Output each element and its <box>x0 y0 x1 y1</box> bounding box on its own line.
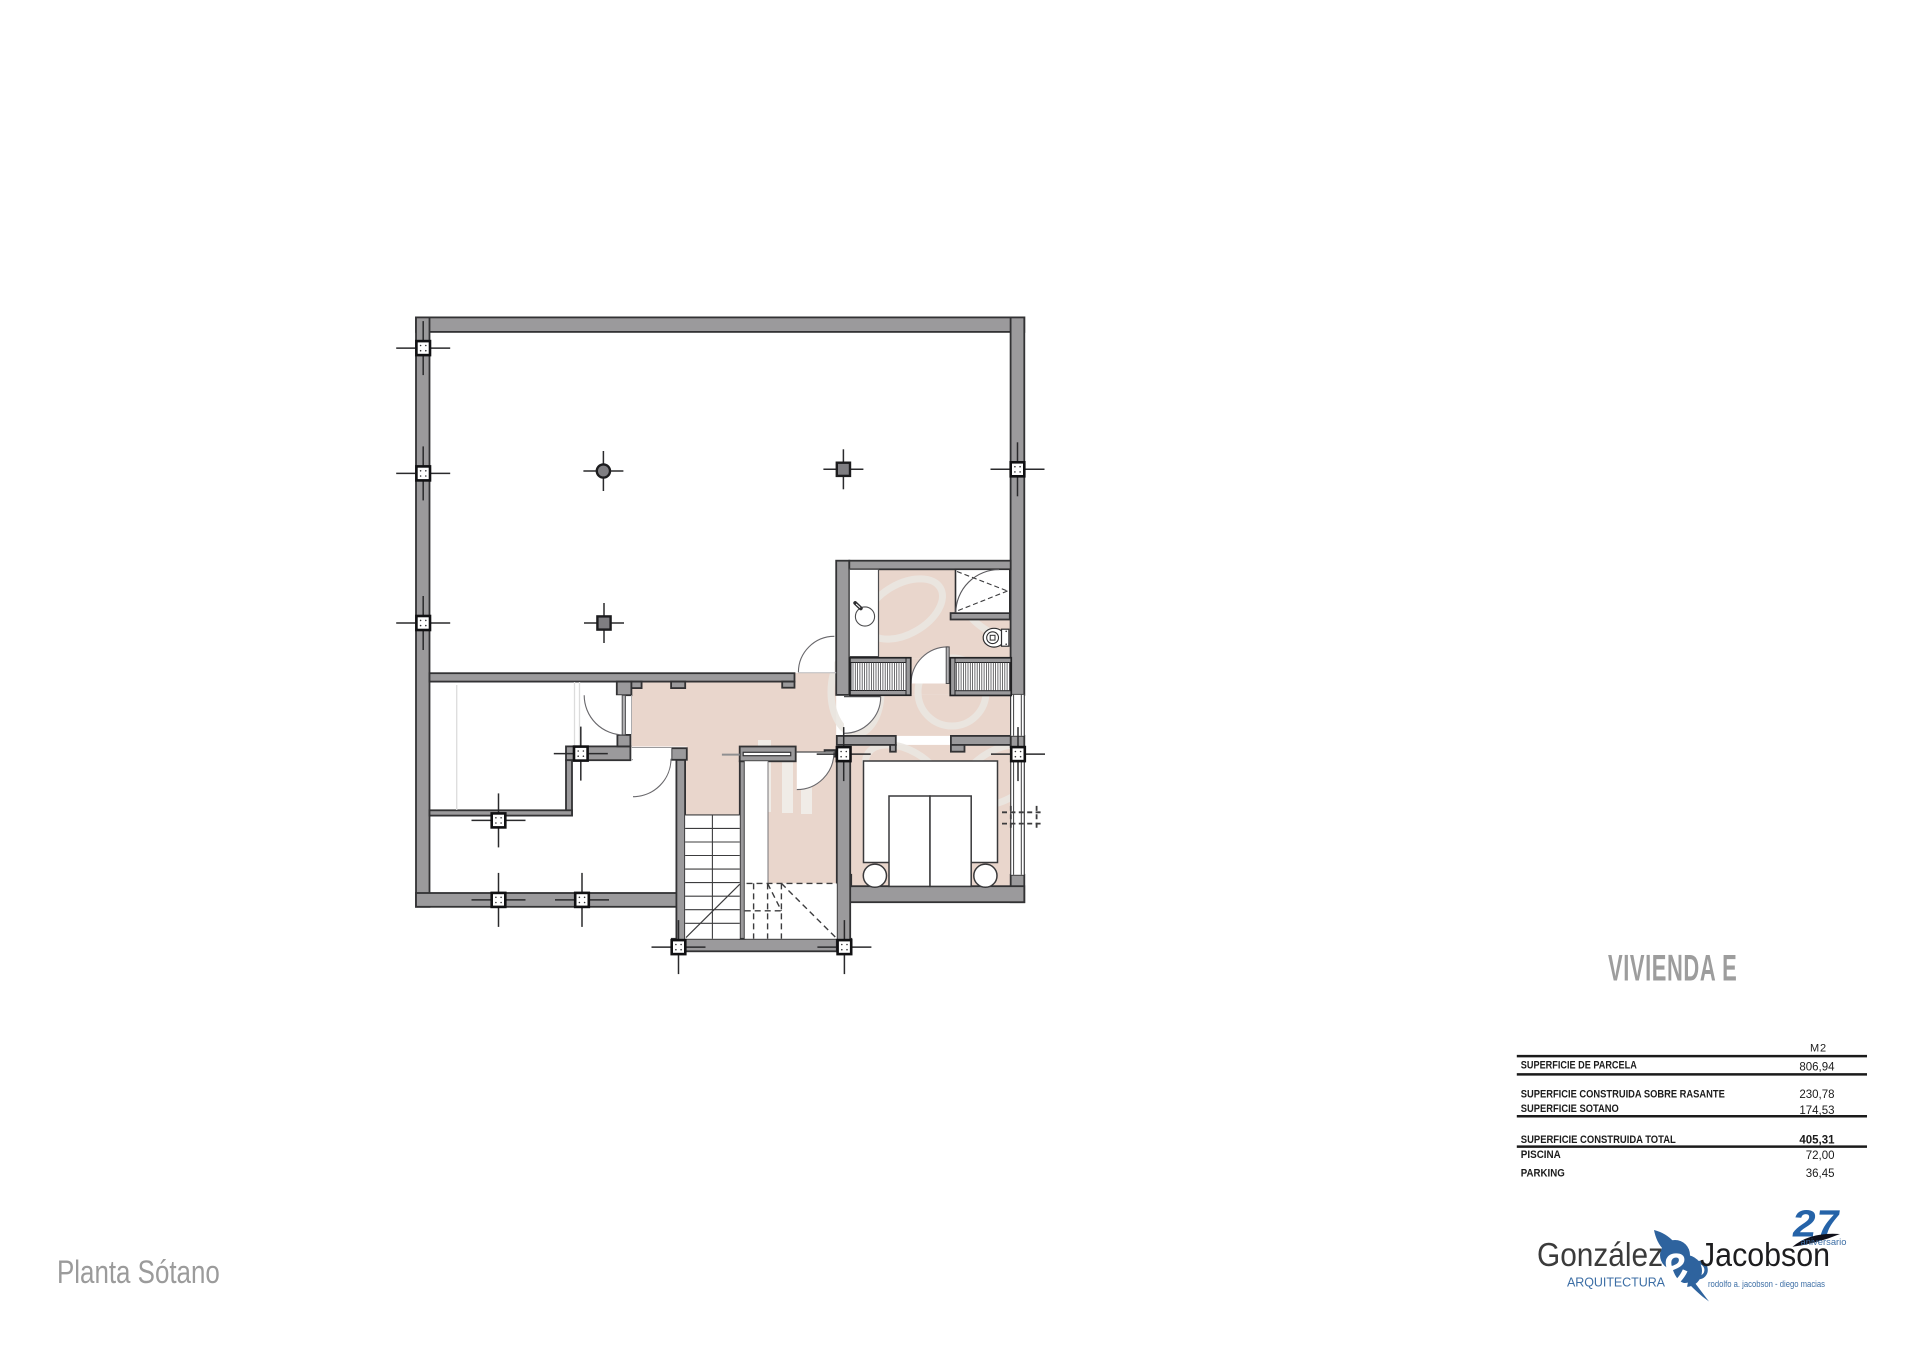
svg-text:230,78: 230,78 <box>1799 1089 1834 1101</box>
svg-text:PISCINA: PISCINA <box>1521 1149 1561 1161</box>
svg-text:SUPERFICIE DE PARCELA: SUPERFICIE DE PARCELA <box>1521 1060 1637 1072</box>
svg-text:SUPERFICIE CONSTRUIDA TOTAL: SUPERFICIE CONSTRUIDA TOTAL <box>1521 1134 1676 1146</box>
svg-text:72,00: 72,00 <box>1806 1150 1835 1162</box>
svg-text:SUPERFICIE SOTANO: SUPERFICIE SOTANO <box>1521 1103 1619 1115</box>
svg-text:36,45: 36,45 <box>1806 1168 1835 1180</box>
svg-text:806,94: 806,94 <box>1799 1062 1835 1074</box>
svg-text:González: González <box>1537 1237 1663 1274</box>
svg-text:rodolfo a. jacobson - diego ma: rodolfo a. jacobson - diego macias <box>1708 1279 1825 1290</box>
svg-text:Planta Sótano: Planta Sótano <box>57 1256 220 1291</box>
svg-text:VIVIENDA E: VIVIENDA E <box>1608 946 1737 989</box>
svg-text:aniversario: aniversario <box>1801 1237 1847 1248</box>
svg-text:ARQUITECTURA: ARQUITECTURA <box>1567 1276 1666 1290</box>
svg-text:M2: M2 <box>1810 1043 1827 1055</box>
svg-text:405,31: 405,31 <box>1799 1135 1835 1147</box>
svg-text:SUPERFICIE CONSTRUIDA SOBRE RA: SUPERFICIE CONSTRUIDA SOBRE RASANTE <box>1521 1088 1725 1100</box>
svg-text:PARKING: PARKING <box>1521 1168 1565 1180</box>
